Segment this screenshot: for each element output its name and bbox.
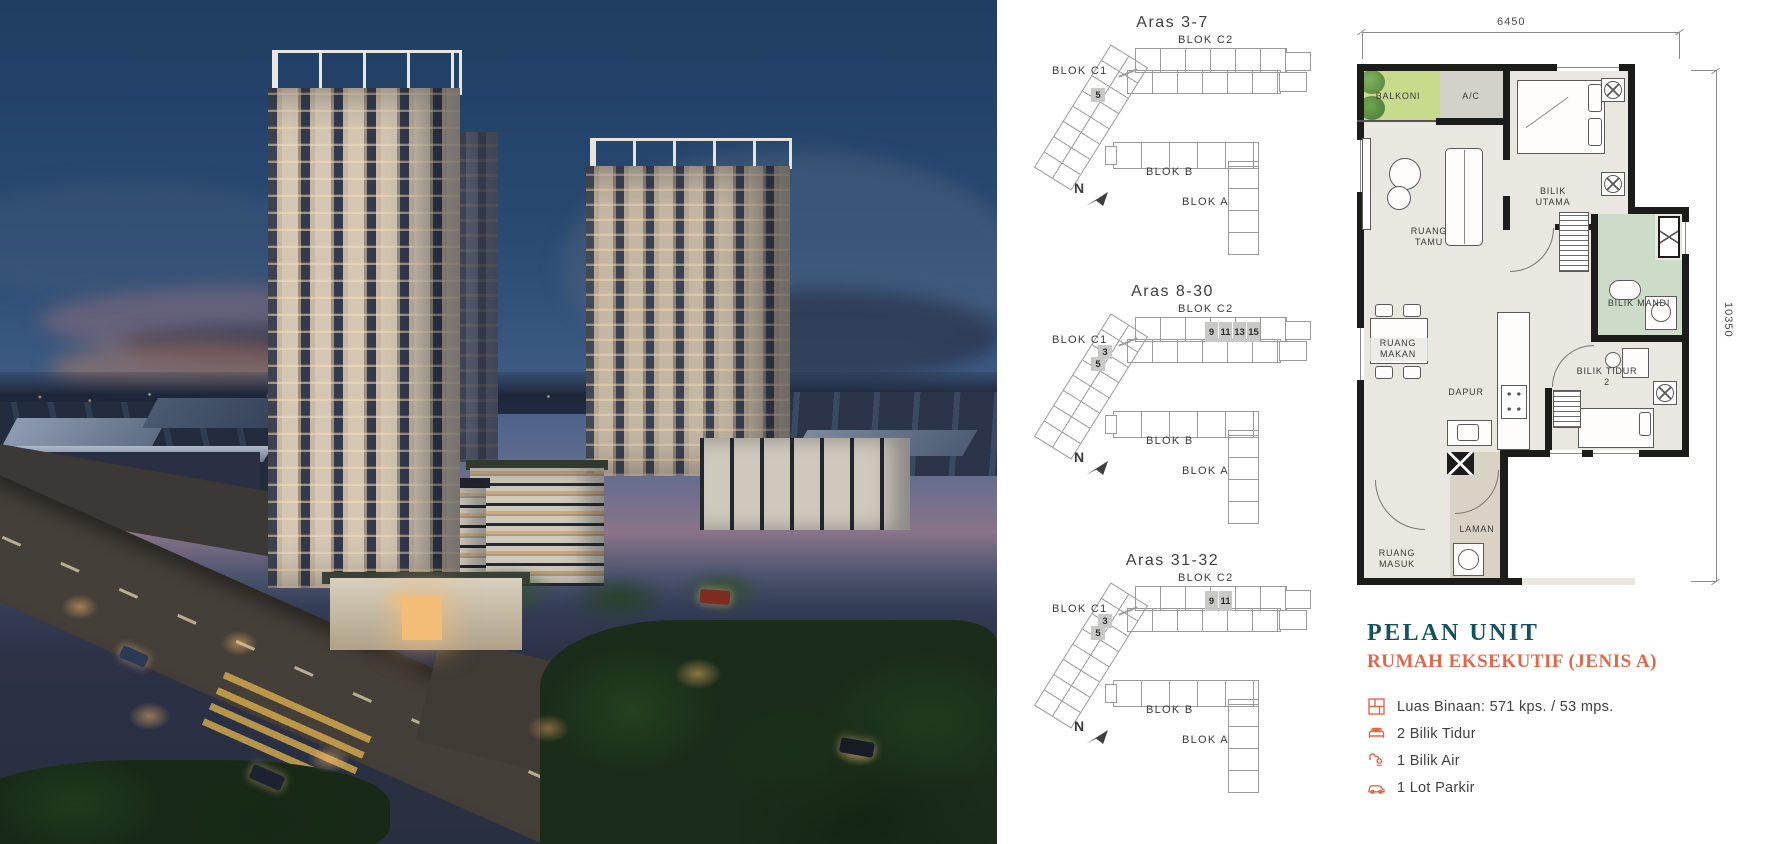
blok-a-label: BLOK A bbox=[1182, 465, 1229, 477]
ceiling-fan-icon bbox=[1601, 78, 1625, 102]
blok-b-label: BLOK B bbox=[1146, 704, 1194, 716]
blok-c2-row2 bbox=[1127, 70, 1281, 94]
wall-bedroom2-west bbox=[1545, 388, 1552, 450]
dimension-tick bbox=[1711, 579, 1720, 586]
site-plan-title: Aras 31-32 bbox=[1030, 552, 1315, 570]
building-edge-detail bbox=[1279, 72, 1307, 92]
toilet bbox=[1609, 280, 1641, 300]
window bbox=[1557, 64, 1619, 71]
floor-area-icon bbox=[1367, 697, 1386, 716]
building-edge-detail bbox=[1105, 146, 1117, 165]
blok-c2-label: BLOK C2 bbox=[1178, 572, 1234, 584]
site-plan-aras-3-7: Aras 3-7 BLOK C2 BLOK C1 BLOK B BLOK A 5… bbox=[1030, 8, 1315, 260]
feature-row: Luas Binaan: 571 kps. / 53 mps. bbox=[1367, 697, 1727, 716]
room-label-ruang-tamu: RUANG TAMU bbox=[1399, 226, 1459, 249]
width-dimension: 6450 bbox=[1497, 16, 1525, 28]
north-arrow-icon bbox=[1086, 192, 1108, 206]
building-edge-detail bbox=[1279, 610, 1307, 630]
room-label-bilik-tidur-2: BILIK TIDUR 2 bbox=[1573, 366, 1641, 389]
highlighted-units-c2: 9 11 bbox=[1205, 591, 1232, 611]
wardrobe bbox=[1553, 390, 1581, 428]
pillow bbox=[1639, 412, 1651, 436]
hero-render-photo bbox=[0, 0, 997, 844]
dimension-extension bbox=[1679, 33, 1680, 59]
sink-basin bbox=[1457, 424, 1479, 441]
room-label-bilik-mandi: BILIK MANDI bbox=[1607, 298, 1671, 309]
bath-icon bbox=[1367, 751, 1386, 770]
feature-list: Luas Binaan: 571 kps. / 53 mps. 2 Bilik … bbox=[1367, 697, 1727, 797]
building-edge-detail bbox=[1285, 321, 1311, 340]
highlighted-unit: 13 bbox=[1233, 322, 1246, 342]
balcony-sliding-door bbox=[1357, 120, 1436, 122]
building-edge-detail bbox=[1105, 415, 1117, 434]
blok-a-bar bbox=[1228, 430, 1259, 524]
room-label-bilik-utama: BILIK UTAMA bbox=[1523, 186, 1583, 209]
highlighted-unit: 5 bbox=[1091, 88, 1105, 102]
north-arrow-icon bbox=[1086, 461, 1108, 475]
chair bbox=[1403, 304, 1421, 317]
feature-row: 2 Bilik Tidur bbox=[1367, 724, 1727, 743]
blok-a-label: BLOK A bbox=[1182, 196, 1229, 208]
pillow bbox=[1588, 118, 1602, 146]
chair bbox=[1375, 366, 1393, 379]
unit-plan-title: PELAN UNIT bbox=[1367, 620, 1727, 647]
room-label-ruang-makan: RUANG MAKAN bbox=[1367, 338, 1429, 361]
wall-bottom bbox=[1357, 578, 1522, 585]
site-plan-title: Aras 8-30 bbox=[1030, 283, 1315, 301]
highlighted-unit: 11 bbox=[1219, 322, 1232, 342]
unit-plan-subtitle: RUMAH EKSEKUTIF (JENIS A) bbox=[1367, 651, 1727, 673]
building-edge-detail bbox=[1285, 52, 1311, 71]
building-edge-detail bbox=[1279, 341, 1307, 361]
room-label-balkoni: BALKONI bbox=[1362, 91, 1434, 102]
highlighted-units-c2: 9 11 13 15 bbox=[1205, 322, 1260, 342]
side-table bbox=[1387, 186, 1411, 210]
room-label-ac: A/C bbox=[1449, 91, 1493, 102]
feature-label: 2 Bilik Tidur bbox=[1397, 726, 1476, 742]
site-plan-aras-31-32: Aras 31-32 BLOK C2 BLOK C1 BLOK B BLOK A… bbox=[1030, 546, 1315, 798]
coffee-table bbox=[1389, 158, 1421, 190]
room-label-dapur: DAPUR bbox=[1440, 387, 1492, 398]
room-label-laman: LAMAN bbox=[1449, 524, 1505, 535]
washer-drum bbox=[1458, 549, 1479, 570]
blok-a-bar bbox=[1228, 699, 1259, 793]
car-icon bbox=[1367, 778, 1386, 797]
brochure-page: Aras 3-7 BLOK C2 BLOK C1 BLOK B BLOK A 5… bbox=[0, 0, 1790, 844]
shower-floor bbox=[1597, 214, 1655, 260]
feature-row: 1 Bilik Air bbox=[1367, 751, 1727, 770]
blok-c2-row2 bbox=[1127, 608, 1281, 632]
chair bbox=[1375, 304, 1393, 317]
north-label: N bbox=[1074, 449, 1084, 465]
highlighted-unit: 5 bbox=[1091, 626, 1105, 640]
blok-a-label: BLOK A bbox=[1182, 734, 1229, 746]
feature-label: Luas Binaan: 571 kps. / 53 mps. bbox=[1397, 699, 1613, 715]
dimension-extension bbox=[1691, 70, 1716, 71]
unit-floor-plan: 6450 10350 bbox=[1345, 0, 1790, 620]
blok-c1-label: BLOK C1 bbox=[1052, 65, 1108, 77]
dimension-line bbox=[1716, 70, 1717, 582]
wall-right-upper bbox=[1628, 64, 1635, 214]
blok-b-label: BLOK B bbox=[1146, 435, 1194, 447]
kitchen-counter bbox=[1497, 312, 1530, 450]
sofa-cushion-line bbox=[1464, 150, 1465, 244]
building-edge-detail bbox=[1285, 590, 1311, 609]
linen-closet bbox=[1658, 216, 1680, 258]
vignette bbox=[0, 0, 997, 844]
blok-b-label: BLOK B bbox=[1146, 166, 1194, 178]
wall-under-ac bbox=[1436, 118, 1503, 125]
wall-corridor-east bbox=[1591, 214, 1598, 339]
window bbox=[1550, 450, 1582, 457]
north-label: N bbox=[1074, 180, 1084, 196]
wardrobe bbox=[1559, 212, 1589, 272]
chair bbox=[1403, 366, 1421, 379]
north-label: N bbox=[1074, 718, 1084, 734]
ceiling-fan-icon bbox=[1653, 381, 1677, 405]
unit-info-block: PELAN UNIT RUMAH EKSEKUTIF (JENIS A) Lua… bbox=[1367, 620, 1727, 797]
highlighted-unit: 15 bbox=[1247, 322, 1260, 342]
blok-a-bar bbox=[1228, 161, 1259, 255]
feature-label: 1 Lot Parkir bbox=[1397, 780, 1475, 796]
highlighted-unit: 9 bbox=[1205, 322, 1218, 342]
stove bbox=[1501, 385, 1527, 419]
highlighted-unit: 11 bbox=[1219, 591, 1232, 611]
feature-label: 1 Bilik Air bbox=[1397, 753, 1460, 769]
blok-c2-row2 bbox=[1127, 339, 1281, 363]
dimension-extension bbox=[1362, 33, 1363, 59]
blok-c2-label: BLOK C2 bbox=[1178, 303, 1234, 315]
north-arrow-icon bbox=[1086, 730, 1108, 744]
ceiling-fan-icon bbox=[1601, 172, 1625, 196]
bed-icon bbox=[1367, 724, 1386, 743]
exterior-cutout bbox=[1508, 457, 1636, 578]
window bbox=[1682, 222, 1689, 254]
wall-step bbox=[1628, 207, 1689, 214]
pillow bbox=[1588, 84, 1602, 112]
tv-console bbox=[1362, 138, 1371, 230]
highlighted-unit: 5 bbox=[1091, 357, 1105, 371]
window bbox=[1593, 450, 1639, 457]
wall-bath-bottom bbox=[1591, 335, 1689, 342]
building-edge-detail bbox=[1105, 684, 1117, 703]
dimension-line bbox=[1362, 32, 1680, 33]
wall-laman-right bbox=[1500, 450, 1508, 585]
wall-bedroom-west bbox=[1503, 64, 1510, 160]
site-plan-title: Aras 3-7 bbox=[1030, 14, 1315, 32]
height-dimension: 10350 bbox=[1722, 302, 1734, 338]
site-plan-aras-8-30: Aras 8-30 BLOK C2 BLOK C1 BLOK B BLOK A … bbox=[1030, 277, 1315, 529]
window bbox=[1357, 328, 1364, 380]
feature-row: 1 Lot Parkir bbox=[1367, 778, 1727, 797]
dimension-extension bbox=[1691, 581, 1716, 582]
wall-bedroom-west-lower bbox=[1503, 196, 1510, 230]
service-duct bbox=[1447, 452, 1474, 475]
highlighted-unit: 9 bbox=[1205, 591, 1218, 611]
room-label-ruang-masuk: RUANG MASUK bbox=[1362, 548, 1432, 571]
blok-c2-label: BLOK C2 bbox=[1178, 34, 1234, 46]
